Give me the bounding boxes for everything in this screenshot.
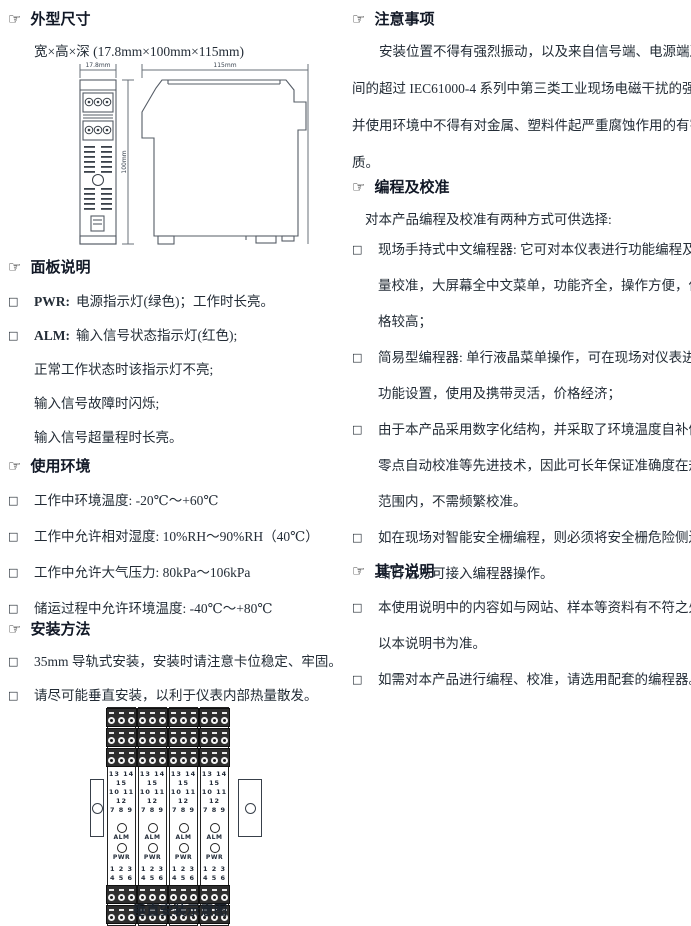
panel-item-alm: □ ALM:输入信号状态指示灯(红色); 正常工作状态时该指示灯不亮;输入信号故… xyxy=(8,322,344,458)
outline-drawing: 17.8mm xyxy=(60,58,312,256)
list-item: □ 现场手持式中文编程器: 它可对本仪表进行功能编程及计量校准，大屏幕全中文菜单… xyxy=(352,236,686,344)
alm-label: ALM xyxy=(176,834,192,841)
isolator-module: 13 14 15 10 11 12 7 8 9 ALM PWR 1 2 3 4 … xyxy=(138,707,167,926)
list-item: □ 由于本产品采用数字化结构，并采取了环境温度自补偿、零点自动校准等先进技术，因… xyxy=(352,416,686,524)
other-list: □ 本使用说明中的内容如与网站、样本等资料有不符之处，以本说明书为准。 □ 如需… xyxy=(352,594,686,702)
terminal-row xyxy=(106,728,137,747)
height-dim-label: 100mm xyxy=(121,150,128,173)
list-item: □ 简易型编程器: 单行液晶菜单操作，可在现场对仪表进行功能设置，使用及携带灵活… xyxy=(352,344,686,416)
pointing-hand-icon: ☞ xyxy=(352,178,365,196)
terminal-row xyxy=(199,748,230,767)
square-bullet-icon: □ xyxy=(8,595,34,615)
terminal-numbers-top: 13 14 15 10 11 12 7 8 9 xyxy=(139,768,166,817)
terminal-numbers-top: 13 14 15 10 11 12 7 8 9 xyxy=(170,768,197,817)
terminal-numbers-top: 13 14 15 10 11 12 7 8 9 xyxy=(108,768,135,817)
square-bullet-icon: □ xyxy=(8,322,34,342)
depth-dim-label: 115mm xyxy=(213,62,236,69)
terminal-numbers-bottom: 1 2 3 4 5 6 xyxy=(201,863,228,885)
terminal-row xyxy=(199,728,230,747)
environment-list: □ 工作中环境温度: -20℃～+60℃ □ 工作中允许相对湿度: 10%RH～… xyxy=(8,487,344,631)
led-indicators: ALM PWR xyxy=(108,817,135,863)
manual-page: { "glyphs": { "hand": "☞", "bullet": "□"… xyxy=(0,0,691,926)
list-item: □ 35mm 导轨式安装，安装时请注意卡位稳定、牢固。 xyxy=(8,648,344,682)
din-rail-right xyxy=(238,779,262,837)
section-header-install: ☞ 安装方法 xyxy=(8,618,344,639)
terminal-row xyxy=(168,728,199,747)
terminal-block-top xyxy=(201,708,228,767)
list-item: □ 工作中环境温度: -20℃～+60℃ xyxy=(8,487,344,523)
rail-hole-icon xyxy=(92,803,103,814)
pointing-hand-icon: ☞ xyxy=(8,10,21,28)
section-title: 注意事项 xyxy=(374,8,434,29)
led-indicators: ALM PWR xyxy=(139,817,166,863)
led-indicators: ALM PWR xyxy=(170,817,197,863)
section-header-programming: ☞ 编程及校准 xyxy=(352,176,686,197)
right-column: ☞ 注意事项 安装位置不得有强烈振动，以及来自信号端、电源端及空间的超过 IEC… xyxy=(352,0,686,926)
section-title: 安装方法 xyxy=(30,618,90,639)
square-bullet-icon: □ xyxy=(8,523,34,543)
width-dim-label: 17.8mm xyxy=(85,62,110,69)
section-header-dimensions: ☞ 外型尺寸 xyxy=(8,8,344,29)
pointing-hand-icon: ☞ xyxy=(8,457,21,475)
panel-item-pwr: □ PWR:电源指示灯(绿色)；工作时长亮。 xyxy=(8,288,344,322)
section-header-panel: ☞ 面板说明 xyxy=(8,256,344,277)
pwr-led-icon xyxy=(148,843,158,853)
section-header-notice: ☞ 注意事项 xyxy=(352,8,686,29)
list-item: □ 本使用说明中的内容如与网站、样本等资料有不符之处，以本说明书为准。 xyxy=(352,594,686,666)
rail-hole-icon xyxy=(245,803,256,814)
square-bullet-icon: □ xyxy=(352,236,378,256)
square-bullet-icon: □ xyxy=(352,524,378,544)
section-title: 面板说明 xyxy=(30,256,90,277)
terminal-block-top xyxy=(139,708,166,767)
install-diagram: 13 14 15 10 11 12 7 8 9 ALM PWR 1 2 3 4 … xyxy=(90,703,270,895)
section-title: 其它说明 xyxy=(374,560,434,581)
side-view xyxy=(142,80,306,244)
isolator-module: 13 14 15 10 11 12 7 8 9 ALM PWR 1 2 3 4 … xyxy=(169,707,198,926)
section-header-other: ☞ 其它说明 xyxy=(352,560,686,581)
pwr-led-icon xyxy=(117,843,127,853)
terminal-row xyxy=(137,728,168,747)
terminal-row xyxy=(168,748,199,767)
list-item: □ 工作中允许大气压力: 80kPa～106kPa xyxy=(8,559,344,595)
pointing-hand-icon: ☞ xyxy=(352,562,365,580)
square-bullet-icon: □ xyxy=(352,416,378,436)
pwr-led-icon xyxy=(210,843,220,853)
terminal-numbers-top: 13 14 15 10 11 12 7 8 9 xyxy=(201,768,228,817)
square-bullet-icon: □ xyxy=(8,487,34,507)
alm-led-icon xyxy=(179,823,189,833)
pointing-hand-icon: ☞ xyxy=(8,620,21,638)
pwr-led-icon xyxy=(179,843,189,853)
notice-paragraph: 安装位置不得有强烈振动，以及来自信号端、电源端及空间的超过 IEC61000-4… xyxy=(352,38,686,186)
alm-led-icon xyxy=(117,823,127,833)
alm-label: ALM xyxy=(114,834,130,841)
terminal-numbers-bottom: 1 2 3 4 5 6 xyxy=(139,863,166,885)
section-header-environment: ☞ 使用环境 xyxy=(8,455,344,476)
square-bullet-icon: □ xyxy=(352,344,378,364)
alm-label: ALM xyxy=(207,834,223,841)
terminal-row xyxy=(106,748,137,767)
terminal-row xyxy=(137,748,168,767)
list-item: □ 如需对本产品进行编程、校准，请选用配套的编程器。 xyxy=(352,666,686,702)
terminal-row xyxy=(137,708,168,727)
terminal-block-top xyxy=(170,708,197,767)
section-title: 外型尺寸 xyxy=(30,8,90,29)
square-bullet-icon: □ xyxy=(352,594,378,614)
terminal-numbers-bottom: 1 2 3 4 5 6 xyxy=(108,863,135,885)
isolator-module: 13 14 15 10 11 12 7 8 9 ALM PWR 1 2 3 4 … xyxy=(107,707,136,926)
square-bullet-icon: □ xyxy=(352,666,378,686)
led-indicators: ALM PWR xyxy=(201,817,228,863)
alm-led-icon xyxy=(210,823,220,833)
pointing-hand-icon: ☞ xyxy=(8,258,21,276)
dimensions-subtitle: 宽×高×深 (17.8mm×100mm×115mm) xyxy=(8,40,344,60)
pwr-label: PWR xyxy=(206,854,223,861)
terminal-row xyxy=(168,708,199,727)
terminal-block-top xyxy=(108,708,135,767)
alm-led-icon xyxy=(148,823,158,833)
panel-item-text: PWR:电源指示灯(绿色)；工作时长亮。 xyxy=(34,288,344,322)
pointing-hand-icon: ☞ xyxy=(352,10,365,28)
isolator-module: 13 14 15 10 11 12 7 8 9 ALM PWR 1 2 3 4 … xyxy=(200,707,229,926)
pwr-label: PWR xyxy=(144,854,161,861)
alm-label: ALM xyxy=(145,834,161,841)
pwr-label: PWR xyxy=(175,854,192,861)
left-column: ☞ 外型尺寸 宽×高×深 (17.8mm×100mm×115mm) 17.8mm xyxy=(8,0,344,926)
outline-drawing-svg: 17.8mm xyxy=(60,58,312,256)
section-title: 使用环境 xyxy=(30,455,90,476)
diagram-caption: 垂直安装示意图 xyxy=(90,899,270,919)
square-bullet-icon: □ xyxy=(8,288,34,308)
terminal-row xyxy=(199,708,230,727)
terminal-numbers-bottom: 1 2 3 4 5 6 xyxy=(170,863,197,885)
square-bullet-icon: □ xyxy=(8,648,34,668)
panel-item-continuation: 正常工作状态时该指示灯不亮;输入信号故障时闪烁;输入信号超量程时长亮。 xyxy=(34,356,344,458)
panel-item-text: ALM:输入信号状态指示灯(红色); xyxy=(34,322,344,356)
din-rail-left xyxy=(90,779,104,837)
section-title: 编程及校准 xyxy=(374,176,449,197)
square-bullet-icon: □ xyxy=(8,559,34,579)
terminal-row xyxy=(106,708,137,727)
list-item: □ 工作中允许相对湿度: 10%RH～90%RH（40℃） xyxy=(8,523,344,559)
module-row: 13 14 15 10 11 12 7 8 9 ALM PWR 1 2 3 4 … xyxy=(107,707,229,926)
programming-list: □ 现场手持式中文编程器: 它可对本仪表进行功能编程及计量校准，大屏幕全中文菜单… xyxy=(352,236,686,596)
pwr-label: PWR xyxy=(113,854,130,861)
square-bullet-icon: □ xyxy=(8,682,34,702)
